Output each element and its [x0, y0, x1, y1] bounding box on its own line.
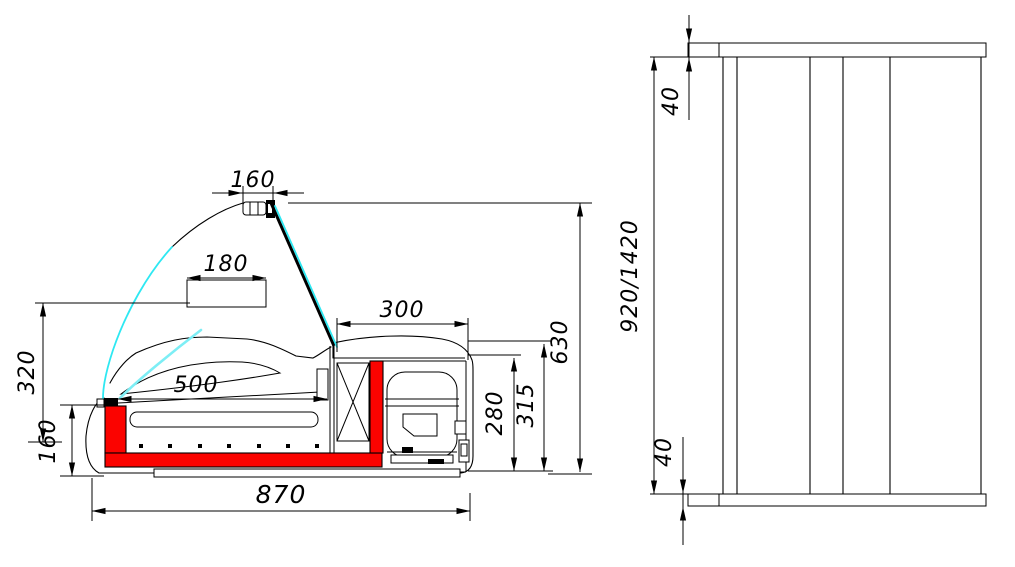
partition-rail — [317, 369, 328, 400]
deck-line — [118, 392, 320, 403]
insulation-rear — [370, 361, 383, 453]
dimension-machine-width: 300 — [337, 298, 468, 360]
compressor-clamp-left — [402, 447, 413, 453]
evaporator-duct — [337, 363, 369, 441]
front-view: 40 920/1420 40 — [618, 15, 986, 545]
dim-ext — [60, 405, 104, 476]
compressor-unit — [385, 372, 469, 464]
dim-deck-length-label: 500 — [174, 373, 219, 398]
front-body — [650, 43, 986, 506]
drain-holes — [139, 444, 319, 448]
base-plinth — [154, 469, 460, 477]
compressor-clamp-right — [428, 459, 444, 464]
front-glass-cyan — [275, 206, 337, 347]
body-ext-lines — [650, 57, 688, 494]
hood-outer-curve — [172, 203, 243, 247]
fitting-upper — [455, 421, 466, 434]
front-nose-trim — [97, 399, 104, 407]
fitting-drier-core — [461, 444, 467, 456]
dim-overall-depth-label: 870 — [256, 480, 307, 509]
dim-front-base-height-label: 160 — [36, 419, 61, 464]
dim-overall-height-label: 630 — [548, 320, 573, 365]
dim-machine-height-label: 280 — [483, 391, 508, 436]
dim-shelf-width-label: 180 — [204, 252, 249, 277]
partition-wall — [330, 346, 334, 453]
technical-drawing: 160 180 320 160 500 300 — [0, 0, 1015, 567]
dim-worktop-height-label: 315 — [514, 383, 539, 428]
bottom-panel — [688, 494, 986, 506]
display-tray — [130, 412, 318, 427]
front-glass-frame — [271, 203, 334, 346]
canopy-shelf — [187, 280, 266, 307]
lamp-unit — [243, 200, 275, 218]
side-section-view: 160 180 320 160 500 300 — [15, 168, 592, 521]
dimension-body-height: 920/1420 — [618, 57, 654, 494]
dim-ext — [468, 341, 553, 471]
top-panel — [688, 43, 986, 57]
dim-machine-width-label: 300 — [380, 298, 425, 323]
dimension-overall-depth: 870 — [92, 478, 470, 521]
drawing-canvas: 160 180 320 160 500 300 — [0, 0, 1015, 567]
dim-lamp-width-label: 160 — [231, 168, 276, 193]
body-panel-lines — [723, 57, 981, 494]
dim-body-height-label: 920/1420 — [618, 219, 643, 332]
dimension-front-base-height: 160 — [36, 405, 104, 476]
dim-top-panel-label: 40 — [659, 86, 684, 116]
lamp-tube — [243, 202, 266, 215]
front-nose-block — [104, 398, 118, 406]
insulation-bottom — [105, 453, 382, 467]
dim-glass-front-height-label: 320 — [15, 350, 40, 395]
dim-bottom-panel-label: 40 — [652, 437, 677, 467]
insulation-front — [105, 406, 126, 453]
dimension-shelf-width: 180 — [187, 252, 266, 278]
dimension-lamp-width: 160 — [212, 168, 304, 207]
dimension-bottom-panel: 40 — [652, 437, 683, 545]
dimension-top-panel: 40 — [659, 15, 689, 120]
curved-glass-outer — [103, 247, 172, 398]
dimension-worktop-height: 315 — [468, 341, 553, 471]
